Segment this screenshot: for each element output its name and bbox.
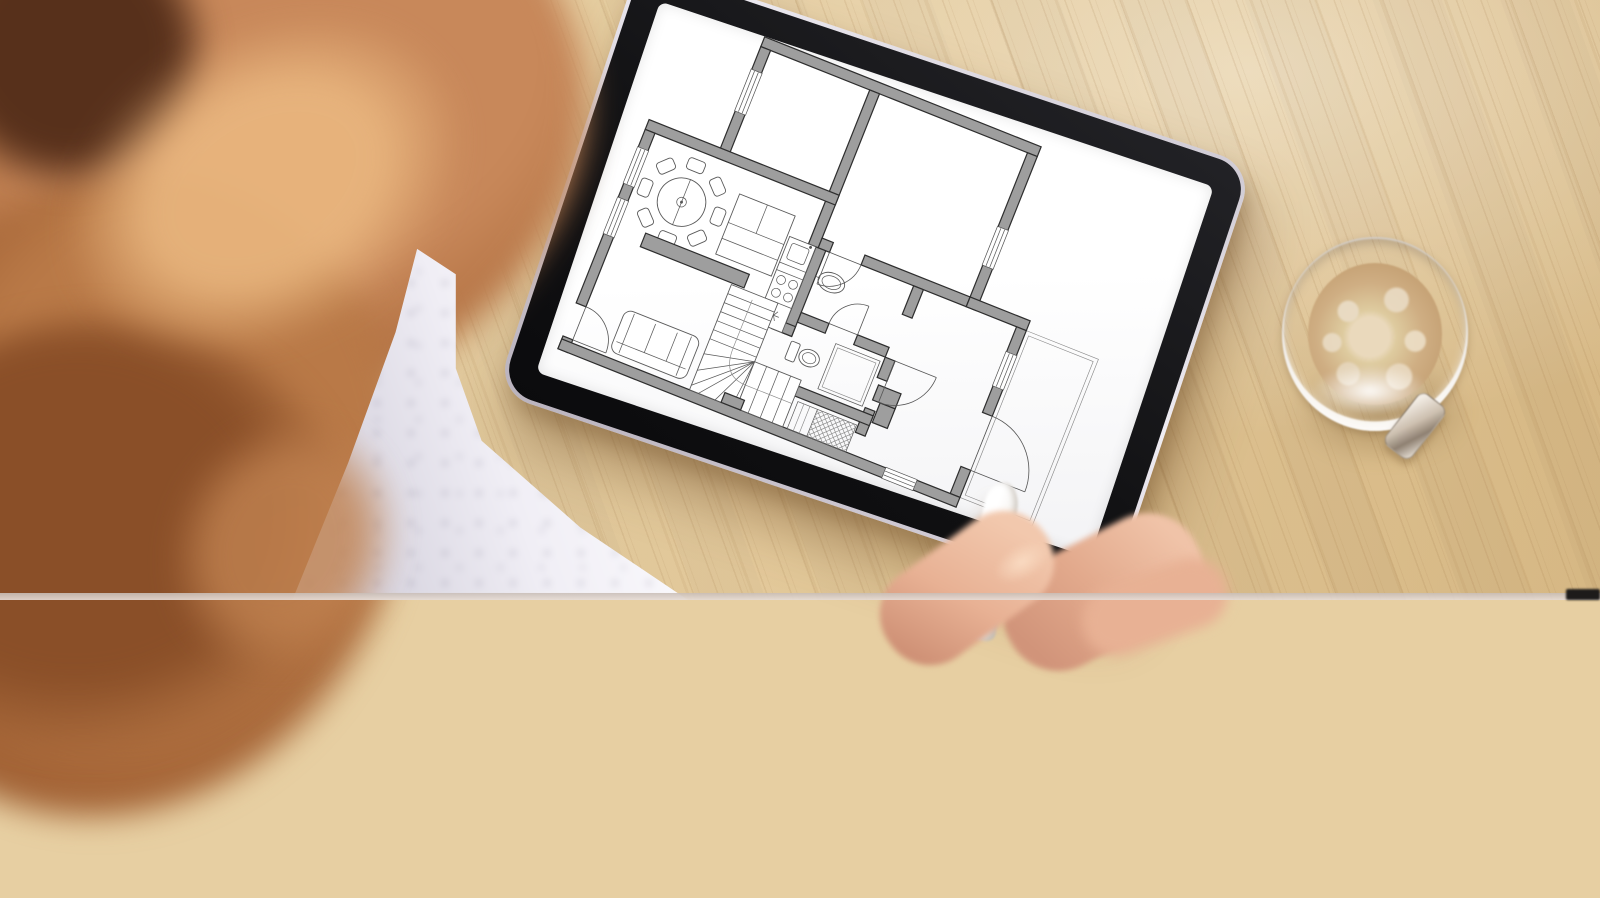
table-edge-strip [0,593,1600,600]
coffee-cup [1282,237,1468,431]
dark-corner-object [1566,589,1600,600]
